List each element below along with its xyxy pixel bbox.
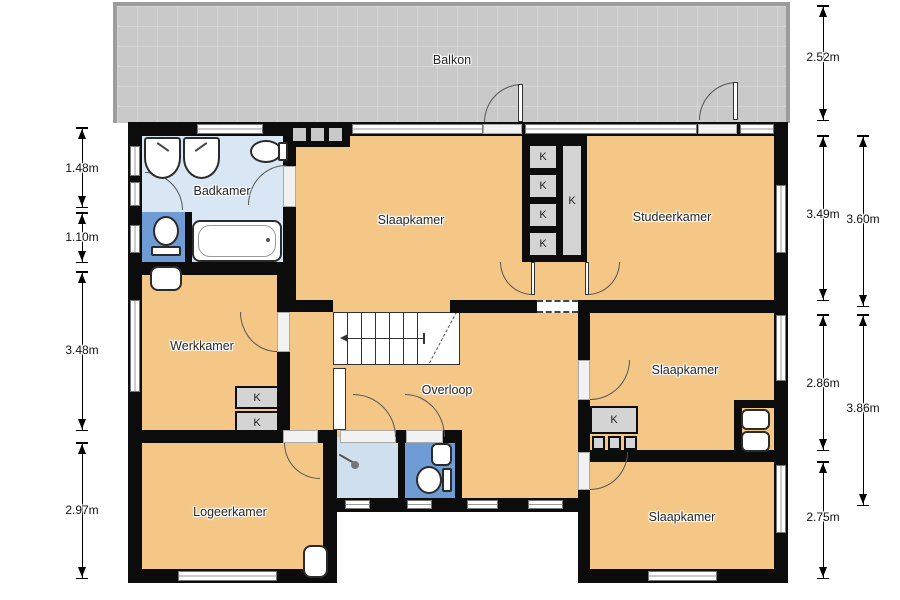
dimension-arrowhead (819, 7, 827, 17)
bathtub-drain (266, 238, 270, 242)
dimension-label: 3.60m (846, 212, 879, 226)
dimension-arrowhead (819, 316, 827, 326)
window (740, 124, 774, 134)
dimension-tick (857, 505, 869, 507)
wall-overloop-top-right (450, 300, 537, 313)
dimension-tick (817, 120, 829, 122)
closet-label: K (568, 195, 575, 207)
bathtub-inner (198, 225, 276, 257)
closet-k-tall: K (561, 144, 583, 257)
wall-werkkamer-right-upper (277, 275, 290, 312)
window (648, 571, 717, 581)
toilet-icon (153, 216, 179, 246)
window (467, 500, 498, 509)
wall-shower-wc-divider (398, 437, 405, 498)
window (130, 300, 140, 392)
dimension-arrowhead (78, 196, 86, 206)
dimension-label: 2.97m (65, 503, 98, 517)
dimension-tick (857, 306, 869, 308)
closet-drawer-2 (608, 436, 621, 450)
closet-label: K (253, 417, 260, 429)
closet-label: K (539, 180, 546, 192)
window (130, 225, 140, 253)
window (345, 500, 370, 509)
sink-icon (183, 137, 220, 179)
dimension-tick (817, 578, 829, 580)
door-leaf (585, 262, 589, 295)
stair-railing (333, 368, 346, 430)
wall-stub-logeerkamer (318, 430, 337, 443)
dimension-tick (76, 430, 88, 432)
chimney-insert-1 (293, 128, 306, 141)
room-label-balkon: Balkon (433, 53, 471, 67)
window (130, 182, 140, 206)
dimension-arrowhead (819, 463, 827, 473)
window (178, 571, 277, 581)
stair-dashed-line (429, 312, 457, 364)
dimension-arrowhead (859, 494, 867, 504)
door-threshold (283, 430, 318, 443)
wall-overloop-east-3 (578, 490, 590, 583)
door-threshold (578, 452, 590, 490)
door-threshold (698, 124, 737, 134)
wall-wc-divider (185, 212, 192, 262)
window (776, 185, 786, 253)
toilet-icon (416, 466, 442, 494)
sink-icon (150, 266, 182, 291)
wall-overloop-east-1 (578, 300, 590, 360)
window (407, 500, 432, 509)
door-threshold (483, 124, 522, 134)
dimension-label: 1.48m (65, 161, 98, 175)
dimension-tick (76, 578, 88, 580)
sink-icon (144, 137, 181, 179)
shower-head-icon (351, 461, 359, 469)
room-label-logeerkamer: Logeerkamer (193, 505, 267, 519)
door-leaf (531, 262, 535, 295)
wall-werkkamer-right-lower (277, 352, 290, 440)
dashed-opening (537, 300, 578, 313)
dimension-label: 3.86m (846, 401, 879, 415)
sink-icon (431, 443, 452, 466)
dimension-arrowhead (78, 129, 86, 139)
dimension-label: 3.48m (65, 343, 98, 357)
dimension-label: 2.86m (806, 376, 839, 390)
closet-label: K (253, 392, 260, 404)
dimension-arrowhead (859, 137, 867, 147)
wall-studeerkamer-bottom (585, 300, 774, 313)
room-label-slaapkamer-mid: Slaapkamer (652, 363, 719, 377)
chimney-insert-3 (329, 128, 342, 141)
window (352, 124, 483, 134)
dimension-arrowhead (819, 439, 827, 449)
window (525, 124, 697, 134)
dimension-arrowhead (78, 567, 86, 577)
closet-label: K (539, 238, 546, 250)
stair-direction-tick (423, 333, 425, 344)
dimension-tick (76, 207, 88, 209)
dimension-label: 2.52m (806, 50, 839, 64)
sink-icon (303, 545, 328, 578)
closet-k-4: K (528, 231, 558, 257)
wall-overloop-top-left (290, 300, 333, 312)
window (130, 146, 140, 176)
dimension-arrowhead (859, 295, 867, 305)
room-label-badkamer: Badkamer (194, 184, 251, 198)
dimension-tick (76, 262, 88, 264)
dimension-arrowhead (819, 137, 827, 147)
dimension-arrowhead (819, 567, 827, 577)
room-label-overloop: Overloop (422, 383, 473, 397)
dimension-arrowhead (78, 419, 86, 429)
toilet-tank (278, 142, 288, 161)
closet-label: K (539, 209, 546, 221)
wall-werkkamer-logeerkamer (128, 430, 283, 443)
toilet-tank (442, 468, 452, 492)
dimension-arrowhead (78, 273, 86, 283)
chimney-insert-2 (311, 128, 324, 141)
door-leaf (518, 84, 523, 122)
window (528, 500, 563, 509)
window (776, 465, 786, 533)
door-leaf (733, 82, 738, 120)
shower-room-floor (337, 437, 398, 498)
closet-k-1: K (528, 144, 558, 170)
dimension-arrowhead (819, 289, 827, 299)
floorplan-canvas: Balkon K K K K K K K K (0, 0, 900, 600)
closet-k-slaapkamer-mid: K (590, 406, 638, 434)
closet-drawer-3 (624, 436, 637, 450)
stair-direction-arrowhead (340, 334, 348, 342)
wall-overloop-east-2 (578, 400, 590, 452)
dimension-tick (817, 300, 829, 302)
closet-drawer-1 (592, 436, 605, 450)
dimension-arrowhead (78, 214, 86, 224)
door-threshold (578, 360, 590, 400)
room-label-werkkamer: Werkkamer (170, 339, 234, 353)
bathtub-icon (192, 220, 282, 262)
dimension-tick (817, 450, 829, 452)
toilet-tank (151, 246, 181, 256)
closet-label: K (610, 414, 617, 426)
dimension-label: 2.75m (806, 510, 839, 524)
dimension-arrowhead (78, 251, 86, 261)
closet-k-werkkamer-1: K (235, 386, 279, 409)
dimension-label: 3.49m (806, 207, 839, 221)
wall-sink-nook-horiz (734, 400, 774, 408)
door-threshold (277, 312, 290, 352)
wall-wc-right (455, 437, 462, 498)
sink-icon (741, 409, 770, 430)
closet-k-3: K (528, 202, 558, 228)
closet-label: K (539, 151, 546, 163)
dimension-arrowhead (819, 109, 827, 119)
room-label-studeerkamer: Studeerkamer (633, 210, 712, 224)
stairs-icon (333, 312, 460, 365)
dimension-arrowhead (859, 316, 867, 326)
sink-icon (741, 431, 770, 452)
window (776, 315, 786, 381)
room-label-slaapkamer-bottom: Slaapkamer (649, 510, 716, 524)
dimension-arrowhead (78, 444, 86, 454)
closet-k-2: K (528, 173, 558, 199)
stair-direction-line (346, 338, 424, 339)
dimension-label: 1.10m (65, 230, 98, 244)
room-label-slaapkamer-top: Slaapkamer (378, 213, 445, 227)
window (197, 124, 263, 134)
